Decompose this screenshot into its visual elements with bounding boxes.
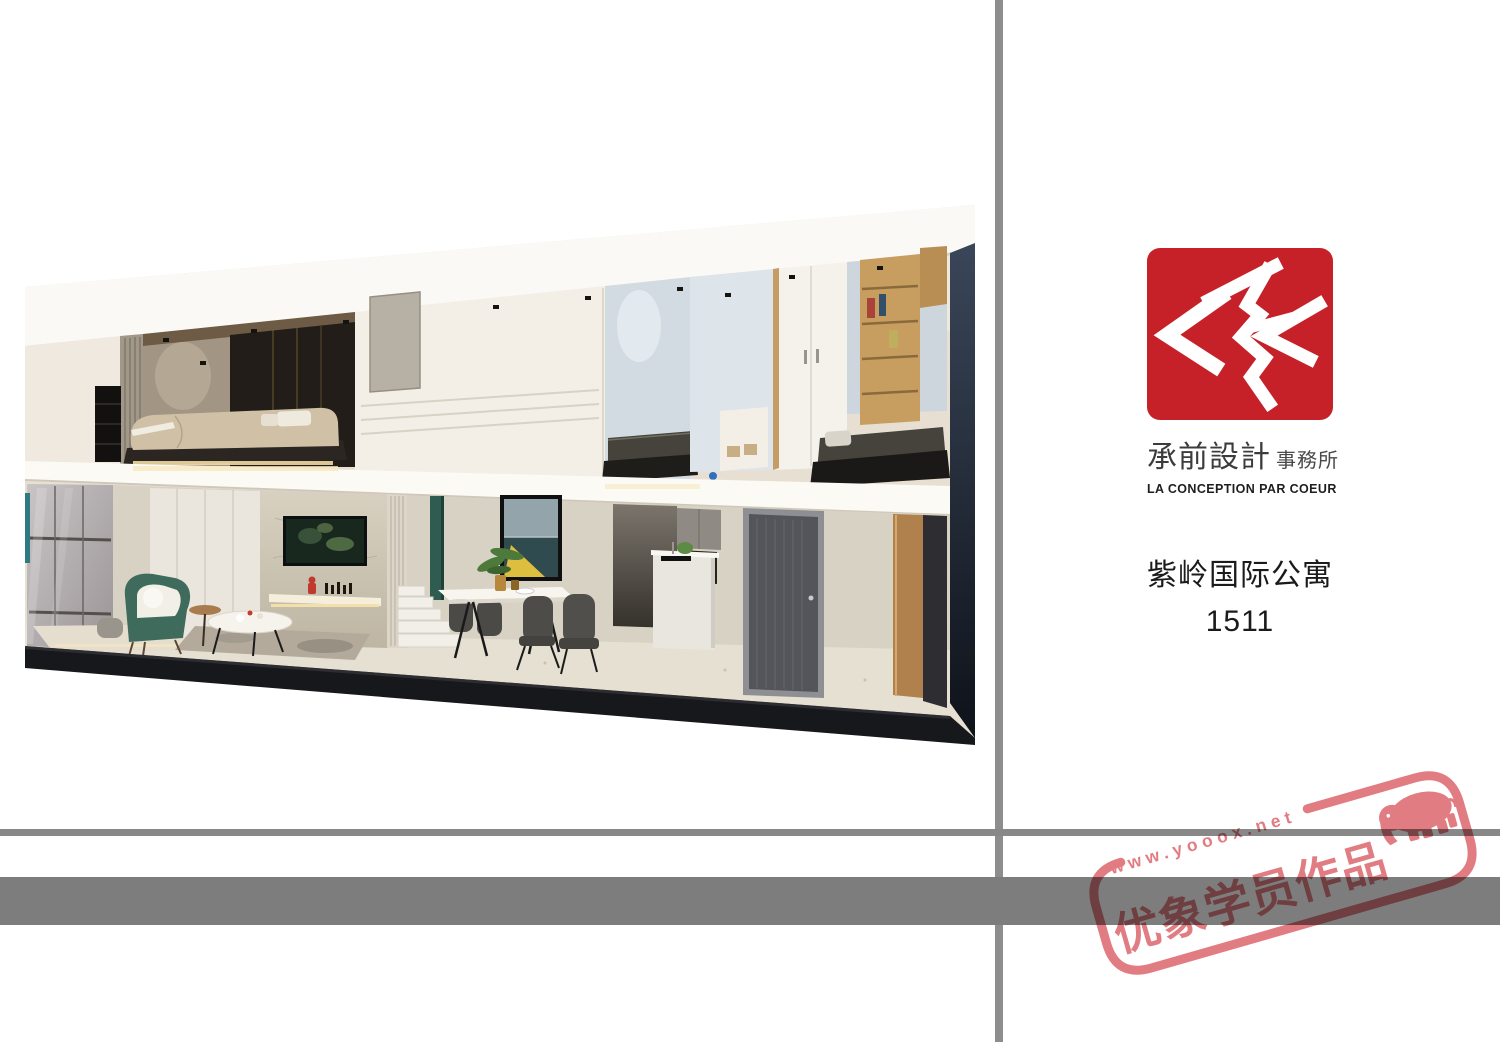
project-unit-number: 1511 (1137, 605, 1343, 639)
elephant-icon (1374, 784, 1462, 850)
brand-name: 承前設計事務所 (1147, 432, 1333, 476)
brand-name-cn: 承前設計 (1147, 441, 1271, 474)
brand-name-suffix: 事務所 (1276, 450, 1339, 472)
project-block: 紫岭国际公寓 1511 (1137, 550, 1343, 639)
project-title: 紫岭国际公寓 (1137, 550, 1343, 594)
brand-name-en: LA CONCEPTION PAR COEUR (1147, 482, 1333, 496)
apartment-section-svg (25, 198, 975, 760)
watermark-stamp: www.yooox.net 优象学员作品 (1079, 761, 1488, 986)
page-canvas: 承前設計事務所 LA CONCEPTION PAR COEUR 紫岭国际公寓 1… (0, 0, 1500, 1042)
entry-door (743, 508, 824, 698)
logo-mark-icon (1147, 248, 1333, 420)
apartment-section-render (25, 198, 975, 760)
section-cut-face (950, 243, 975, 738)
brand-block: 承前設計事務所 LA CONCEPTION PAR COEUR (1147, 248, 1333, 496)
